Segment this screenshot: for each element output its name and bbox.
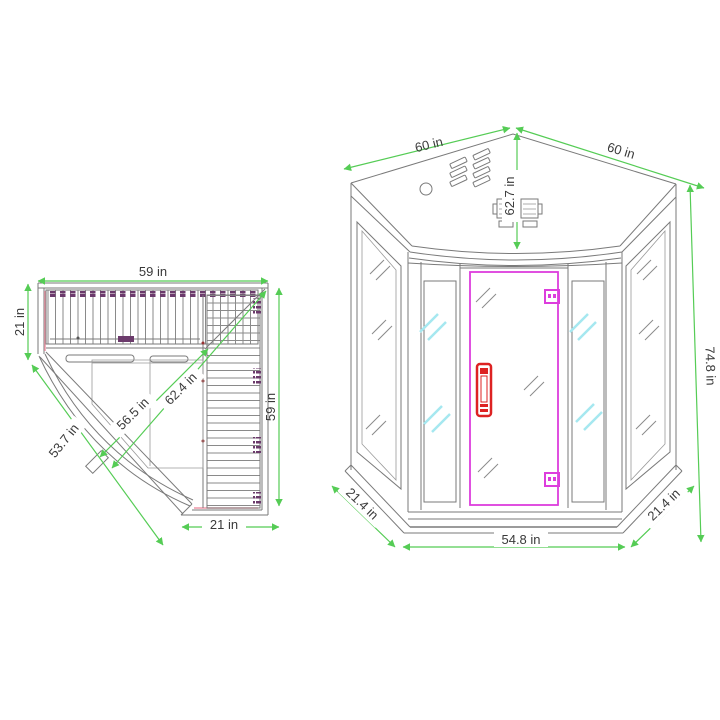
front-base-width-label: 54.8 in bbox=[501, 532, 540, 547]
plan-dim-right-depth: 59 in bbox=[263, 288, 279, 506]
plan-inner-diagonal-long-label: 62.4 in bbox=[162, 370, 200, 408]
bench-dot bbox=[202, 342, 205, 345]
front-view: 60 in 60 in 62.7 in 74.8 in bbox=[332, 128, 719, 547]
roof-fixtures bbox=[420, 148, 542, 227]
plan-front-diagonal-label: 53.7 in bbox=[45, 421, 81, 461]
plan-dim-left-depth: 21 in bbox=[12, 284, 28, 360]
plan-top-width-label: 59 in bbox=[139, 264, 167, 279]
door-glass-hatch bbox=[478, 458, 498, 478]
heater-band bbox=[253, 437, 261, 453]
plan-bottom-width-label: 21 in bbox=[210, 517, 238, 532]
plan-dim-bottom-width: 21 in bbox=[182, 517, 279, 533]
bench-dot bbox=[77, 337, 80, 340]
front-total-height-label: 74.8 in bbox=[702, 346, 718, 386]
front-roof-left-label: 60 in bbox=[413, 134, 444, 155]
heater-band bbox=[253, 368, 261, 384]
front-dim-roof-left: 60 in bbox=[344, 128, 510, 169]
door-hinge-bottom bbox=[545, 473, 559, 486]
left-side-panel bbox=[357, 222, 401, 489]
plan-dim-inner-diagonal-short: 56.5 in bbox=[100, 349, 208, 457]
base bbox=[345, 465, 682, 533]
door-handle bbox=[477, 364, 491, 416]
roof-light bbox=[420, 183, 432, 195]
front-window-right bbox=[570, 281, 604, 502]
door bbox=[460, 264, 568, 508]
front-roof-depth-label: 62.7 in bbox=[502, 176, 517, 215]
roof-vent-left bbox=[450, 157, 468, 187]
roof-vent-right bbox=[473, 148, 491, 187]
plan-inner-diagonal-short-label: 56.5 in bbox=[114, 395, 152, 433]
front-dim-base-width: 54.8 in bbox=[403, 532, 625, 547]
bench-guard-rail bbox=[150, 356, 188, 362]
heater-band bbox=[253, 492, 261, 506]
plan-left-depth-label: 21 in bbox=[12, 308, 27, 336]
door-glass-hatch bbox=[524, 376, 544, 396]
sauna-dimension-drawing: 59 in 21 in 59 in 21 in 53.7 in bbox=[0, 0, 720, 720]
front-dim-total-height: 74.8 in bbox=[690, 185, 719, 542]
plan-view: 59 in 21 in 59 in 21 in 53.7 in bbox=[12, 264, 279, 545]
front-window-left bbox=[420, 281, 456, 502]
cabin-walls bbox=[351, 196, 676, 512]
front-dim-roof-right: 60 in bbox=[516, 128, 704, 188]
heater-accent bbox=[118, 336, 134, 342]
bench-guard-rail bbox=[66, 355, 134, 362]
right-side-panel bbox=[626, 222, 670, 489]
diagram-canvas: 59 in 21 in 59 in 21 in 53.7 in bbox=[0, 0, 720, 720]
plan-dim-top-width: 59 in bbox=[38, 264, 268, 281]
door-hinge-top bbox=[545, 290, 559, 303]
door-glass-hatch bbox=[476, 288, 496, 308]
plan-dim-front-diagonal: 53.7 in bbox=[32, 365, 163, 545]
plan-right-depth-label: 59 in bbox=[263, 393, 278, 421]
plan-side-bench bbox=[202, 289, 266, 508]
front-dim-roof-depth: 62.7 in bbox=[502, 133, 518, 249]
